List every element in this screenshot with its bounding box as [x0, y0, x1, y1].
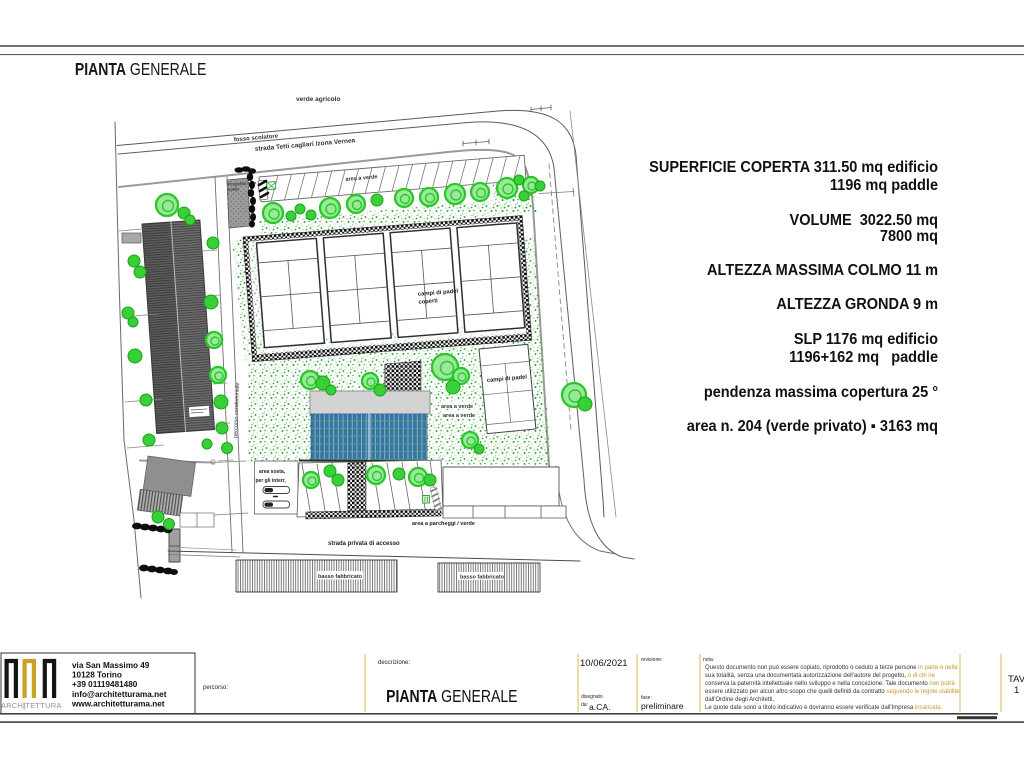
svg-text:PIANTA GENERALE: PIANTA GENERALE: [75, 59, 207, 79]
svg-text:via San Massimo 49: via San Massimo 49: [72, 661, 150, 670]
svg-text:ALTEZZA GRONDA 9 m: ALTEZZA GRONDA 9 m: [776, 296, 938, 313]
svg-text:ARCH|TETTURA: ARCH|TETTURA: [1, 701, 62, 710]
svg-text:area sosta,: area sosta,: [259, 469, 286, 475]
svg-text:a.CA.: a.CA.: [589, 702, 611, 712]
svg-text:essere utilizzato per alcun al: essere utilizzato per alcun altro scopo …: [705, 689, 960, 695]
svg-text:SLP 1176 mq edificio: SLP 1176 mq edificio: [794, 331, 938, 348]
svg-text:1196+162 mq paddle: 1196+162 mq paddle: [789, 349, 938, 366]
svg-text:1196 mq paddle: 1196 mq paddle: [830, 177, 938, 194]
svg-text:7800 mq: 7800 mq: [880, 228, 938, 245]
svg-text:preliminare: preliminare: [641, 701, 684, 711]
svg-text:Le quote date sono a titolo in: Le quote date sono a titolo indicativo e…: [705, 705, 943, 711]
svg-text:disegnato: disegnato: [581, 694, 603, 700]
svg-text:dall'Ordine degli Architetti.: dall'Ordine degli Architetti.: [705, 697, 775, 703]
svg-text:revisione:: revisione:: [641, 657, 662, 663]
svg-text:1: 1: [1014, 685, 1019, 696]
svg-text:info@architetturama.net: info@architetturama.net: [72, 690, 167, 699]
svg-text:area a verde: area a verde: [443, 413, 475, 419]
svg-text:SUPERFICIE COPERTA 311.50 mq e: SUPERFICIE COPERTA 311.50 mq edificio: [649, 159, 938, 176]
svg-text:da:: da:: [581, 702, 588, 708]
svg-text:sua totalità, senza una docume: sua totalità, senza una documentata auto…: [705, 673, 936, 679]
svg-text:percorso:: percorso:: [203, 685, 228, 691]
svg-text:basso fabbricato: basso fabbricato: [460, 575, 505, 581]
svg-text:10/06/2021: 10/06/2021: [580, 658, 628, 669]
svg-text:PIANTA GENERALE: PIANTA GENERALE: [386, 686, 518, 706]
svg-text:strada privata di accesso: strada privata di accesso: [328, 541, 400, 547]
svg-text:pendenza massima copertura 25: pendenza massima copertura 25 °: [704, 384, 938, 401]
svg-text:VOLUME 3022.50 mq: VOLUME 3022.50 mq: [790, 212, 938, 229]
svg-text:conserva la paternità intellet: conserva la paternità intellettuale nell…: [705, 681, 955, 687]
svg-text:area a parcheggi / verde: area a parcheggi / verde: [412, 521, 475, 527]
svg-text:area n. 204 (verde privato) ▪: area n. 204 (verde privato) ▪ 3163 mq: [687, 418, 938, 435]
svg-text:TAV.: TAV.: [1008, 674, 1024, 685]
svg-text:10128 Torino: 10128 Torino: [72, 671, 122, 680]
svg-text:+39 01119481480: +39 01119481480: [72, 680, 138, 689]
svg-text:per gli interr,: per gli interr,: [256, 478, 287, 484]
svg-text:area a verde: area a verde: [441, 404, 473, 410]
svg-text:sosta: sosta: [228, 186, 240, 192]
svg-text:www.architetturama.net: www.architetturama.net: [71, 699, 165, 708]
svg-text:basso fabbricato: basso fabbricato: [318, 574, 363, 580]
svg-text:verde agricolo: verde agricolo: [296, 96, 340, 103]
svg-text:descrizione:: descrizione:: [378, 660, 410, 666]
svg-text:ALTEZZA MASSIMA COLMO 11 m: ALTEZZA MASSIMA COLMO 11 m: [707, 262, 938, 279]
svg-text:Questo documento non può esser: Questo documento non può essere copiato,…: [705, 665, 958, 671]
svg-text:nota:: nota:: [703, 657, 714, 663]
